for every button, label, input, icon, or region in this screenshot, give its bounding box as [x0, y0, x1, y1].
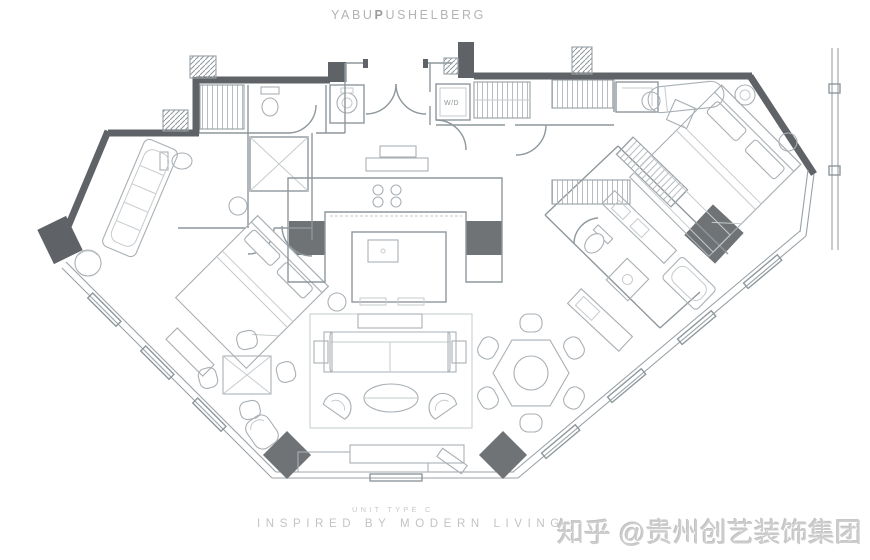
tagline: INSPIRED BY MODERN LIVING: [257, 518, 565, 530]
master-shower: [606, 258, 648, 300]
nightstand-left-1: [229, 197, 247, 215]
floor-plan-drawing: W/D: [0, 0, 870, 560]
lounge-chair-left: [323, 388, 357, 420]
bedroom-bench: [568, 289, 633, 351]
sofa-console: [358, 314, 422, 328]
column-master-suite: [684, 204, 743, 263]
lounge-chair-right: [424, 388, 458, 420]
washer-dryer-label: W/D: [444, 100, 459, 107]
armchair-left-bedroom: [75, 250, 101, 276]
adjacent-curtain-wall: [829, 48, 840, 250]
tv-console: [298, 445, 467, 474]
toilet-top: [261, 87, 279, 116]
bath-top-door-arc: [288, 105, 316, 133]
entry-door-right-arc: [396, 84, 426, 114]
chaise-lounge: [642, 80, 725, 128]
powder-room: [330, 85, 364, 123]
dining-chairs: [475, 314, 588, 432]
hall-closets: [436, 80, 658, 155]
washer-dryer-closet: W/D: [436, 84, 470, 150]
linen-closet: [200, 85, 244, 129]
kitchen-island: [352, 232, 446, 305]
dining-table: [493, 340, 569, 406]
walkin-closet-a: [552, 180, 630, 204]
nightstand-left-2: [328, 293, 346, 311]
nightstand-right-1: [735, 85, 755, 105]
sofa: [324, 332, 456, 372]
dining-area: [475, 314, 588, 432]
side-table-left: [314, 341, 328, 363]
right-bedroom: [568, 80, 801, 351]
cooktop: [373, 185, 401, 207]
foyer-console: [366, 146, 428, 171]
shower: [250, 137, 308, 191]
entry-foyer: W/D: [330, 63, 470, 171]
bedroom-right-door-arc: [516, 125, 546, 155]
coffee-table: [364, 384, 418, 412]
living-room: [298, 314, 472, 474]
side-table-right: [452, 341, 466, 363]
unit-type-label: UNIT TYPE C: [352, 505, 434, 514]
column-kitchen-right: [466, 221, 502, 255]
game-table-area: [197, 329, 298, 452]
floorplan-page: YABUPUSHELBERG: [0, 0, 870, 560]
zhihu-watermark: 知乎 @贵州创艺装饰集团: [557, 511, 862, 550]
entry-door-left-arc: [366, 84, 396, 114]
